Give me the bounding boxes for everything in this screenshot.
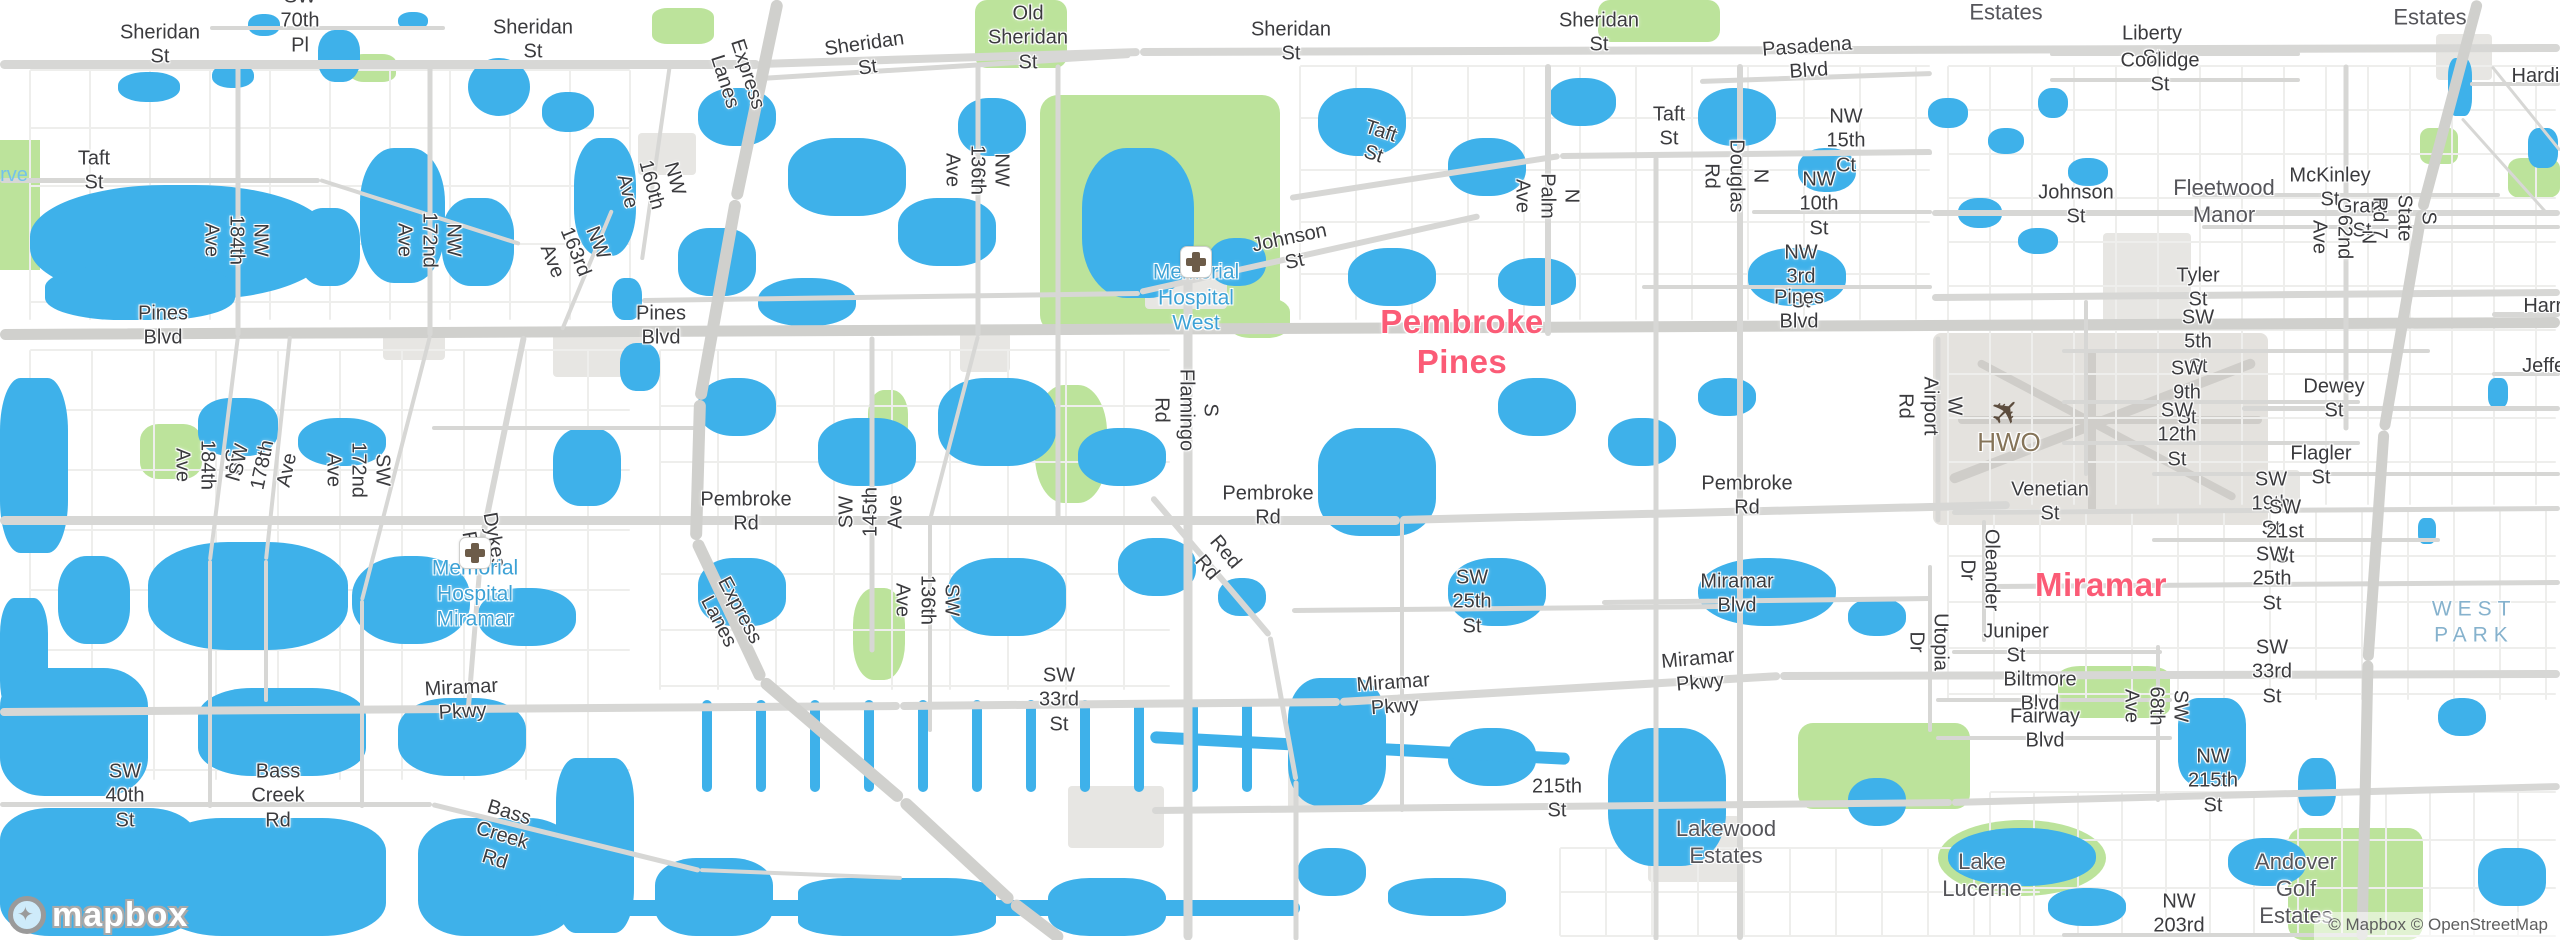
road [870, 336, 875, 652]
canal [1242, 700, 1252, 792]
street-label-sw-25th-st: SW 25th St [2253, 542, 2292, 615]
water-body [2048, 888, 2126, 926]
road [2050, 78, 2300, 82]
water-body [2478, 848, 2546, 906]
water-body [45, 265, 235, 320]
water-body [118, 72, 180, 102]
road [1780, 670, 2560, 680]
minor-street [1635, 66, 1637, 320]
road [1700, 71, 1932, 84]
road [0, 60, 760, 69]
water-body [2018, 228, 2058, 254]
water-body [198, 398, 278, 456]
minor-street [1948, 373, 2556, 375]
road [976, 64, 981, 336]
water-body [1608, 728, 1726, 866]
water-body [2178, 698, 2246, 786]
water-body [798, 878, 996, 936]
road [428, 64, 433, 336]
road [2062, 349, 2430, 353]
water-body [298, 208, 360, 286]
road [2152, 472, 2560, 476]
road [1932, 289, 2560, 301]
minor-street [1691, 66, 1693, 320]
road [1737, 64, 1743, 940]
area-label-fleetwood-manor: Fleetwood Manor [2173, 175, 2275, 229]
canal [702, 700, 712, 792]
road [2084, 300, 2088, 476]
built-up-area [1068, 786, 1164, 848]
water-body [620, 343, 660, 391]
neighborhood-label-west-park: WEST PARK [2432, 596, 2516, 647]
road [264, 560, 268, 702]
minor-street [30, 529, 630, 531]
road [1340, 672, 1780, 706]
water-body [0, 668, 148, 796]
minor-street [1300, 221, 1930, 223]
water-body [1082, 148, 1194, 298]
minor-street [1948, 285, 2556, 287]
minor-street [1915, 66, 1917, 320]
water-body [612, 278, 642, 320]
road [1545, 64, 1551, 336]
water-body [1948, 828, 2096, 886]
water-body [553, 428, 621, 506]
minor-street [587, 350, 589, 780]
water-body [1498, 258, 1576, 306]
road [1982, 520, 1986, 642]
minor-street [2209, 792, 2211, 936]
road [1654, 156, 1659, 940]
water-body [2298, 758, 2336, 816]
road [432, 426, 700, 430]
water-body [1698, 378, 1756, 416]
road [2344, 64, 2349, 430]
road [1400, 501, 2010, 524]
hospital-icon [459, 537, 491, 569]
road [2156, 645, 2160, 802]
minor-street [30, 649, 630, 651]
road [2492, 312, 2560, 317]
street-label-taft-st: Taft St [78, 147, 110, 196]
road [1140, 44, 2560, 56]
water-body [198, 688, 366, 776]
water-body [1448, 558, 1546, 626]
park-area [1598, 0, 1720, 42]
road [1952, 783, 2560, 806]
road [1936, 698, 2172, 702]
road [1400, 520, 1404, 812]
water-body [758, 278, 856, 326]
minor-street [1948, 601, 2556, 603]
road [1642, 285, 1932, 289]
road [2470, 82, 2560, 86]
road [1756, 151, 1932, 155]
road [210, 26, 445, 30]
road [2062, 400, 2360, 404]
minor-street [1948, 417, 2556, 419]
canal [972, 700, 982, 792]
minor-street [30, 127, 630, 129]
water-body [442, 198, 514, 286]
water-body [958, 98, 1026, 156]
water-body [898, 198, 996, 266]
water-body [1498, 378, 1576, 436]
water-body [698, 378, 776, 436]
canal [1026, 700, 1036, 792]
hospital-icon [1180, 246, 1212, 278]
canal [918, 700, 928, 792]
water-body [574, 138, 636, 256]
road [2202, 225, 2560, 229]
park-area [853, 588, 905, 680]
water-body [478, 588, 576, 646]
road [2242, 406, 2560, 411]
road [2491, 65, 2560, 151]
road [360, 600, 364, 808]
street-label-johnson-st: Johnson St [2038, 181, 2114, 230]
minor-street [1560, 935, 2040, 937]
minor-street [1560, 891, 2040, 893]
water-body [158, 818, 386, 936]
street-label-pembroke-rd: Pembroke Rd [700, 488, 791, 537]
water-body [148, 542, 348, 650]
water-body [2068, 158, 2108, 186]
water-body [58, 556, 130, 644]
water-body [1048, 878, 1166, 936]
built-up-area [638, 133, 696, 175]
map-canvas[interactable]: SW 70th PlSheridan StSheridan StSheridan… [0, 0, 2560, 940]
road [1932, 210, 2560, 216]
road [2492, 372, 2560, 376]
minor-street [449, 70, 451, 320]
minor-street [660, 349, 1170, 351]
street-label-mckinley-st: McKinley St [2289, 164, 2370, 213]
street-label-sheridan-st: Sheridan St [1251, 18, 1331, 67]
road [1992, 580, 2560, 589]
minor-street [525, 350, 527, 780]
mapbox-attribution-link[interactable]: © Mapbox [2328, 915, 2406, 934]
water-body [1388, 878, 1506, 916]
road [2050, 52, 2300, 56]
water-body [1348, 248, 1436, 306]
water-body [542, 92, 594, 132]
mapbox-logo[interactable]: mapbox [8, 893, 188, 937]
minor-street [1948, 555, 2556, 557]
water-body [2488, 378, 2508, 408]
minor-street [30, 469, 630, 471]
water-body [1748, 248, 1846, 306]
road [1294, 780, 1299, 940]
minor-street [2165, 792, 2167, 936]
road [928, 520, 932, 732]
road [0, 178, 320, 183]
city-label-pembroke-pines: Pembroke Pines [1380, 302, 1544, 383]
water-body [1988, 128, 2024, 154]
road [1056, 64, 1061, 520]
minor-street [1948, 647, 2556, 649]
road [1152, 799, 1952, 814]
minor-street [1859, 66, 1861, 320]
minor-street [1948, 693, 2556, 695]
water-body [1078, 428, 1166, 486]
minor-street [29, 70, 31, 320]
mapbox-wordmark: mapbox [52, 896, 188, 935]
water-body [2528, 128, 2558, 168]
water-body [1548, 78, 1616, 126]
canal [1080, 700, 1090, 792]
road [1928, 565, 1932, 732]
water-body [318, 30, 360, 82]
minor-street [1300, 65, 1930, 67]
minor-street [1948, 461, 2556, 463]
water-body [1698, 558, 1836, 626]
road [1936, 336, 1941, 522]
water-body [788, 138, 906, 216]
water-body [698, 88, 776, 146]
minor-street [660, 685, 1170, 687]
road [900, 698, 1340, 710]
canal [756, 700, 766, 792]
canal [1134, 700, 1144, 792]
road [2417, 0, 2484, 211]
area-label-estates: Estates [2393, 5, 2466, 32]
road [0, 802, 432, 807]
road [758, 675, 906, 804]
water-body [1298, 848, 1366, 896]
minor-street [30, 349, 630, 351]
street-label-taft-st: Taft St [1653, 103, 1685, 152]
mapbox-pin-icon [8, 896, 46, 934]
osm-attribution-link[interactable]: © OpenStreetMap [2411, 915, 2548, 934]
water-body [2438, 698, 2486, 736]
park-area [652, 8, 714, 44]
water-body [948, 558, 1066, 636]
road [1952, 650, 2162, 654]
minor-street [1948, 153, 2556, 155]
water-body [0, 378, 68, 553]
road [236, 64, 241, 336]
road [2062, 441, 2360, 445]
water-body [1848, 598, 1906, 636]
water-body [2038, 88, 2068, 118]
road [208, 560, 212, 808]
water-body [818, 418, 916, 486]
street-label-215th-st: 215th St [1532, 775, 1582, 824]
road [1752, 210, 1932, 214]
area-label-estates: Estates [1969, 0, 2042, 26]
road [2152, 538, 2440, 542]
street-label-miramar-pkwy: Miramar Pkwy [1660, 644, 1737, 699]
minor-street [30, 409, 630, 411]
street-label-oleander-dr: Oleander Dr [1955, 529, 2004, 611]
water-body [1928, 98, 1968, 128]
road [479, 335, 527, 540]
road [1184, 270, 1193, 940]
water-body [298, 418, 386, 466]
minor-street [153, 350, 155, 780]
water-body [248, 14, 280, 36]
water-body [1608, 418, 1676, 466]
water-body [2228, 838, 2306, 886]
water-body [1318, 88, 1406, 156]
map-attribution: © Mapbox © OpenStreetMap [2314, 912, 2560, 940]
minor-street [1948, 197, 2556, 199]
street-label-sheridan-st: Sheridan St [493, 16, 573, 65]
road [1936, 736, 2172, 740]
